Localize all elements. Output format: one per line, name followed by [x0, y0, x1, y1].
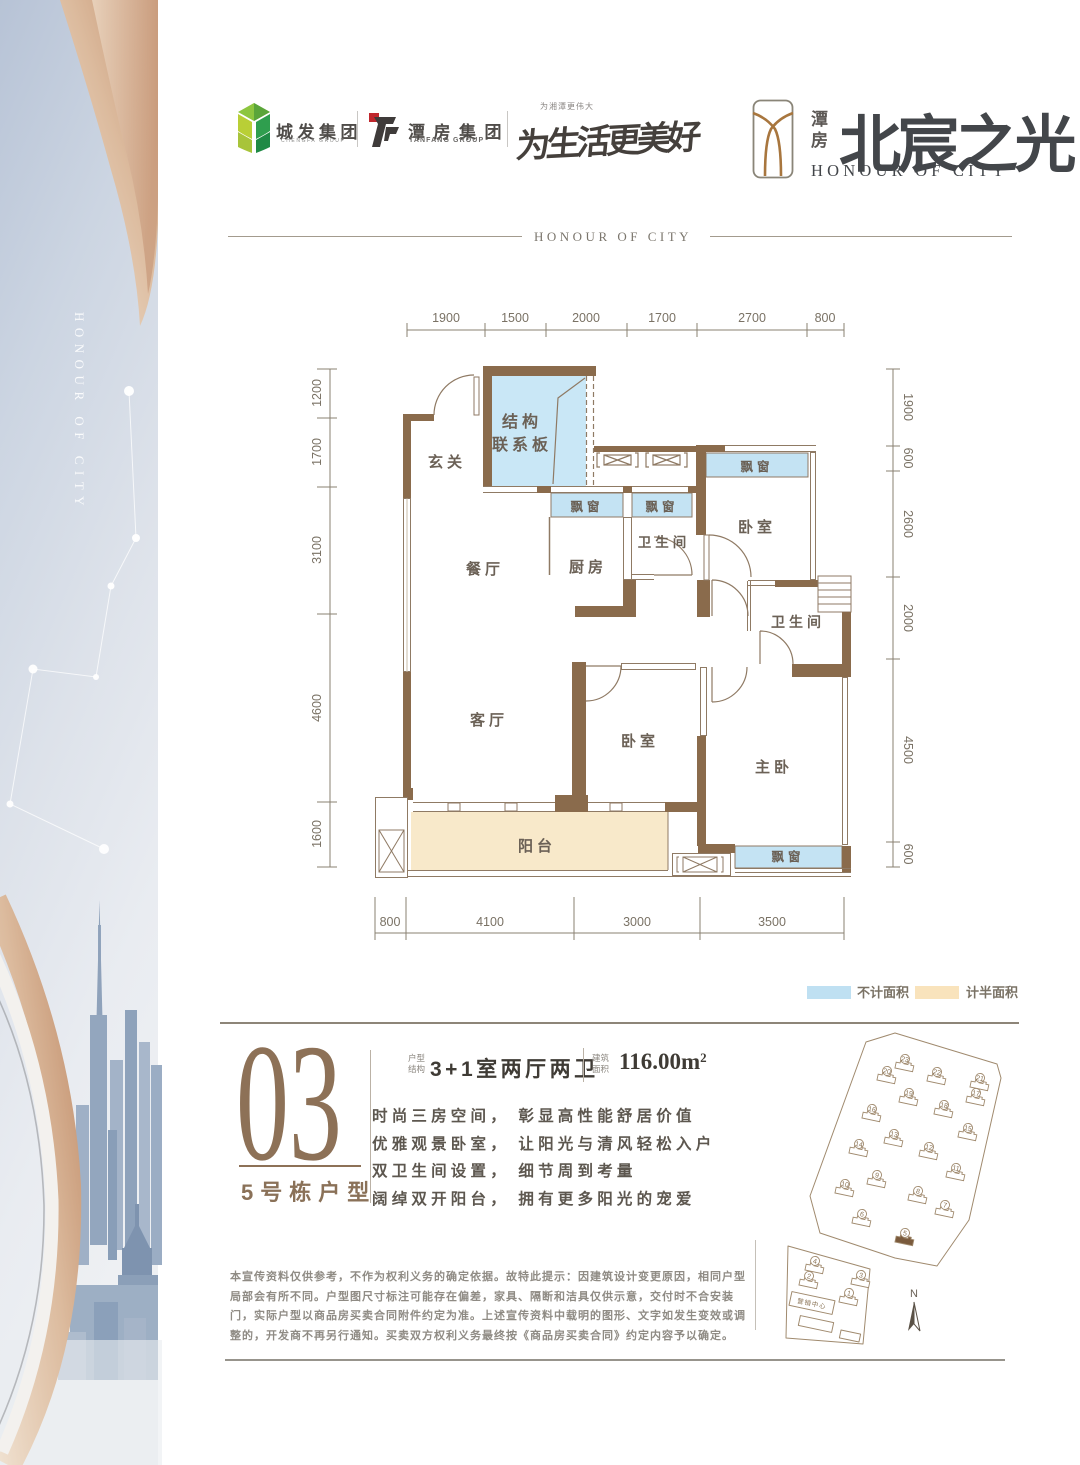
svg-text:飘窗: 飘窗: [771, 849, 804, 864]
svg-text:主卧: 主卧: [755, 758, 793, 776]
svg-text:1700: 1700: [310, 438, 324, 466]
svg-text:餐厅: 餐厅: [466, 560, 504, 578]
svg-text:1200: 1200: [310, 379, 324, 407]
svg-text:2000: 2000: [901, 604, 915, 632]
svg-text:4500: 4500: [901, 736, 915, 764]
svg-text:1900: 1900: [901, 393, 915, 421]
svg-text:阳台: 阳台: [518, 837, 556, 855]
svg-text:11: 11: [952, 1165, 961, 1173]
svg-text:厨房: 厨房: [569, 558, 607, 576]
svg-text:飘窗: 飘窗: [645, 499, 678, 514]
svg-text:1500: 1500: [501, 311, 529, 325]
svg-text:800: 800: [380, 915, 401, 929]
svg-text:2000: 2000: [572, 311, 600, 325]
svg-text:1900: 1900: [432, 311, 460, 325]
svg-text:结构: 结构: [501, 412, 542, 431]
svg-text:600: 600: [901, 448, 915, 469]
svg-text:卧室: 卧室: [738, 518, 776, 536]
svg-text:600: 600: [901, 844, 915, 865]
svg-text:联系板: 联系板: [492, 435, 552, 454]
svg-text:卫生间: 卫生间: [771, 614, 825, 630]
svg-text:1700: 1700: [648, 311, 676, 325]
svg-text:4600: 4600: [310, 694, 324, 722]
svg-text:玄关: 玄关: [428, 453, 466, 471]
svg-text:2700: 2700: [738, 311, 766, 325]
svg-text:4100: 4100: [476, 915, 504, 929]
svg-text:2600: 2600: [901, 510, 915, 538]
svg-text:卧室: 卧室: [621, 732, 659, 750]
svg-text:客厅: 客厅: [469, 711, 508, 729]
svg-text:N: N: [910, 1288, 918, 1300]
svg-text:计半面积: 计半面积: [966, 985, 1018, 1000]
svg-text:3100: 3100: [310, 536, 324, 564]
svg-text:卫生间: 卫生间: [638, 534, 691, 550]
svg-text:3500: 3500: [758, 915, 786, 929]
svg-text:800: 800: [815, 311, 836, 325]
svg-text:飘窗: 飘窗: [570, 499, 603, 514]
svg-text:3000: 3000: [623, 915, 651, 929]
svg-text:1600: 1600: [310, 820, 324, 848]
svg-text:飘窗: 飘窗: [740, 459, 773, 474]
svg-text:不计面积: 不计面积: [857, 985, 909, 1000]
